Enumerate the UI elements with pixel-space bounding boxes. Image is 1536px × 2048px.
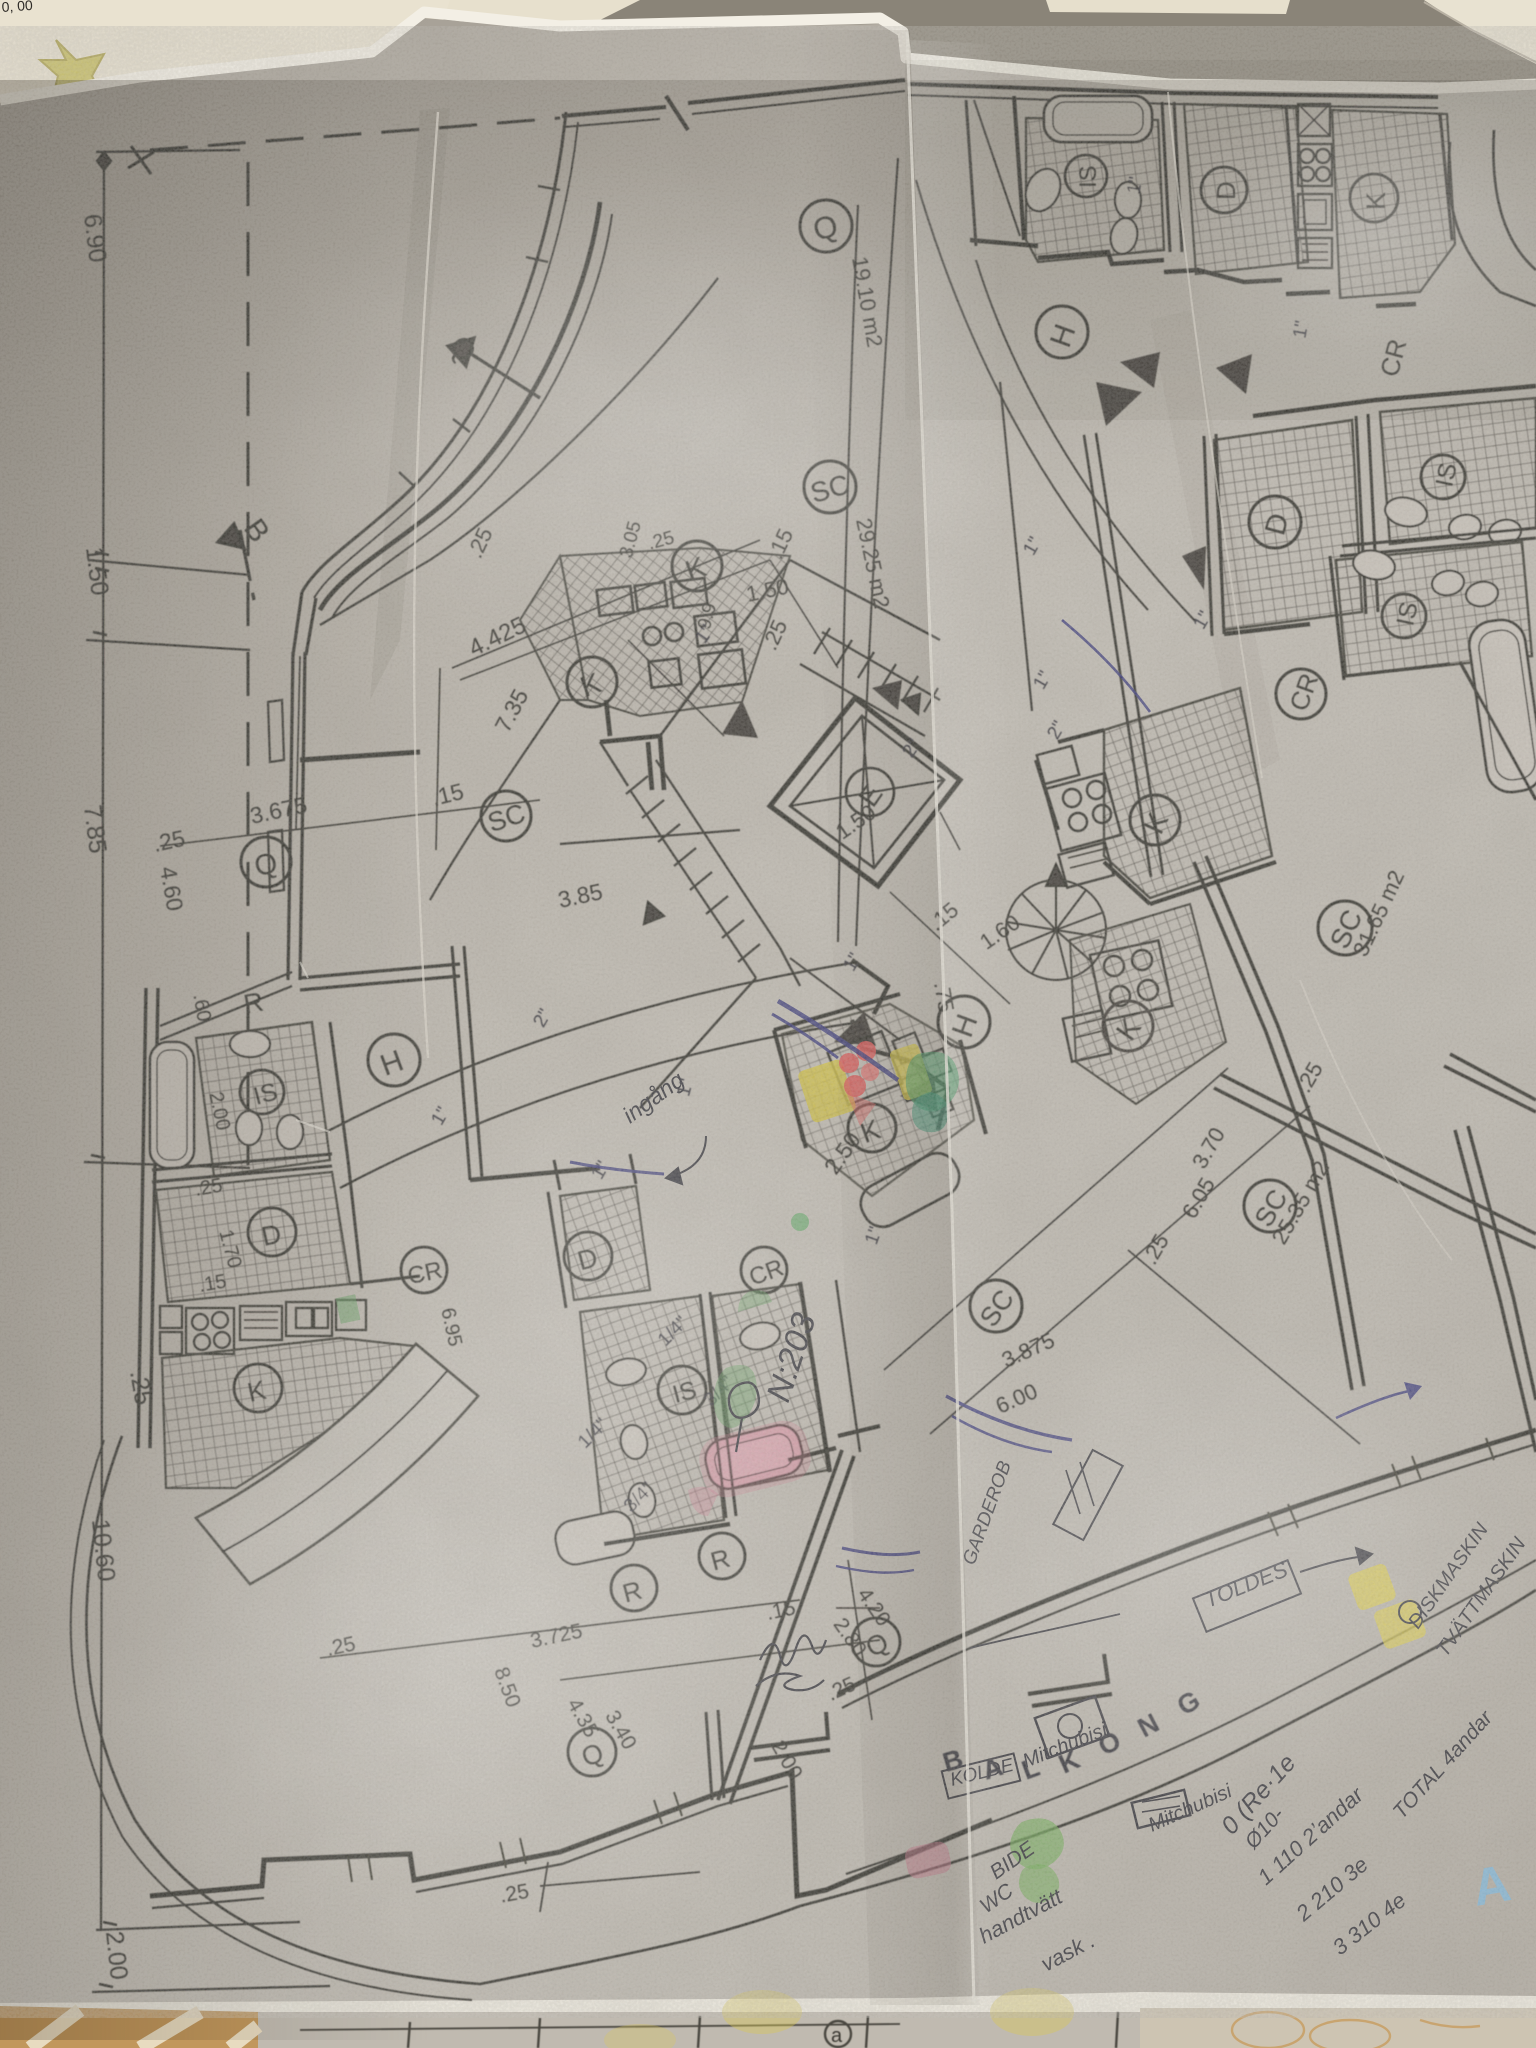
svg-text:a: a	[831, 2025, 843, 2047]
svg-text:0, 00: 0, 00	[1, 0, 33, 15]
